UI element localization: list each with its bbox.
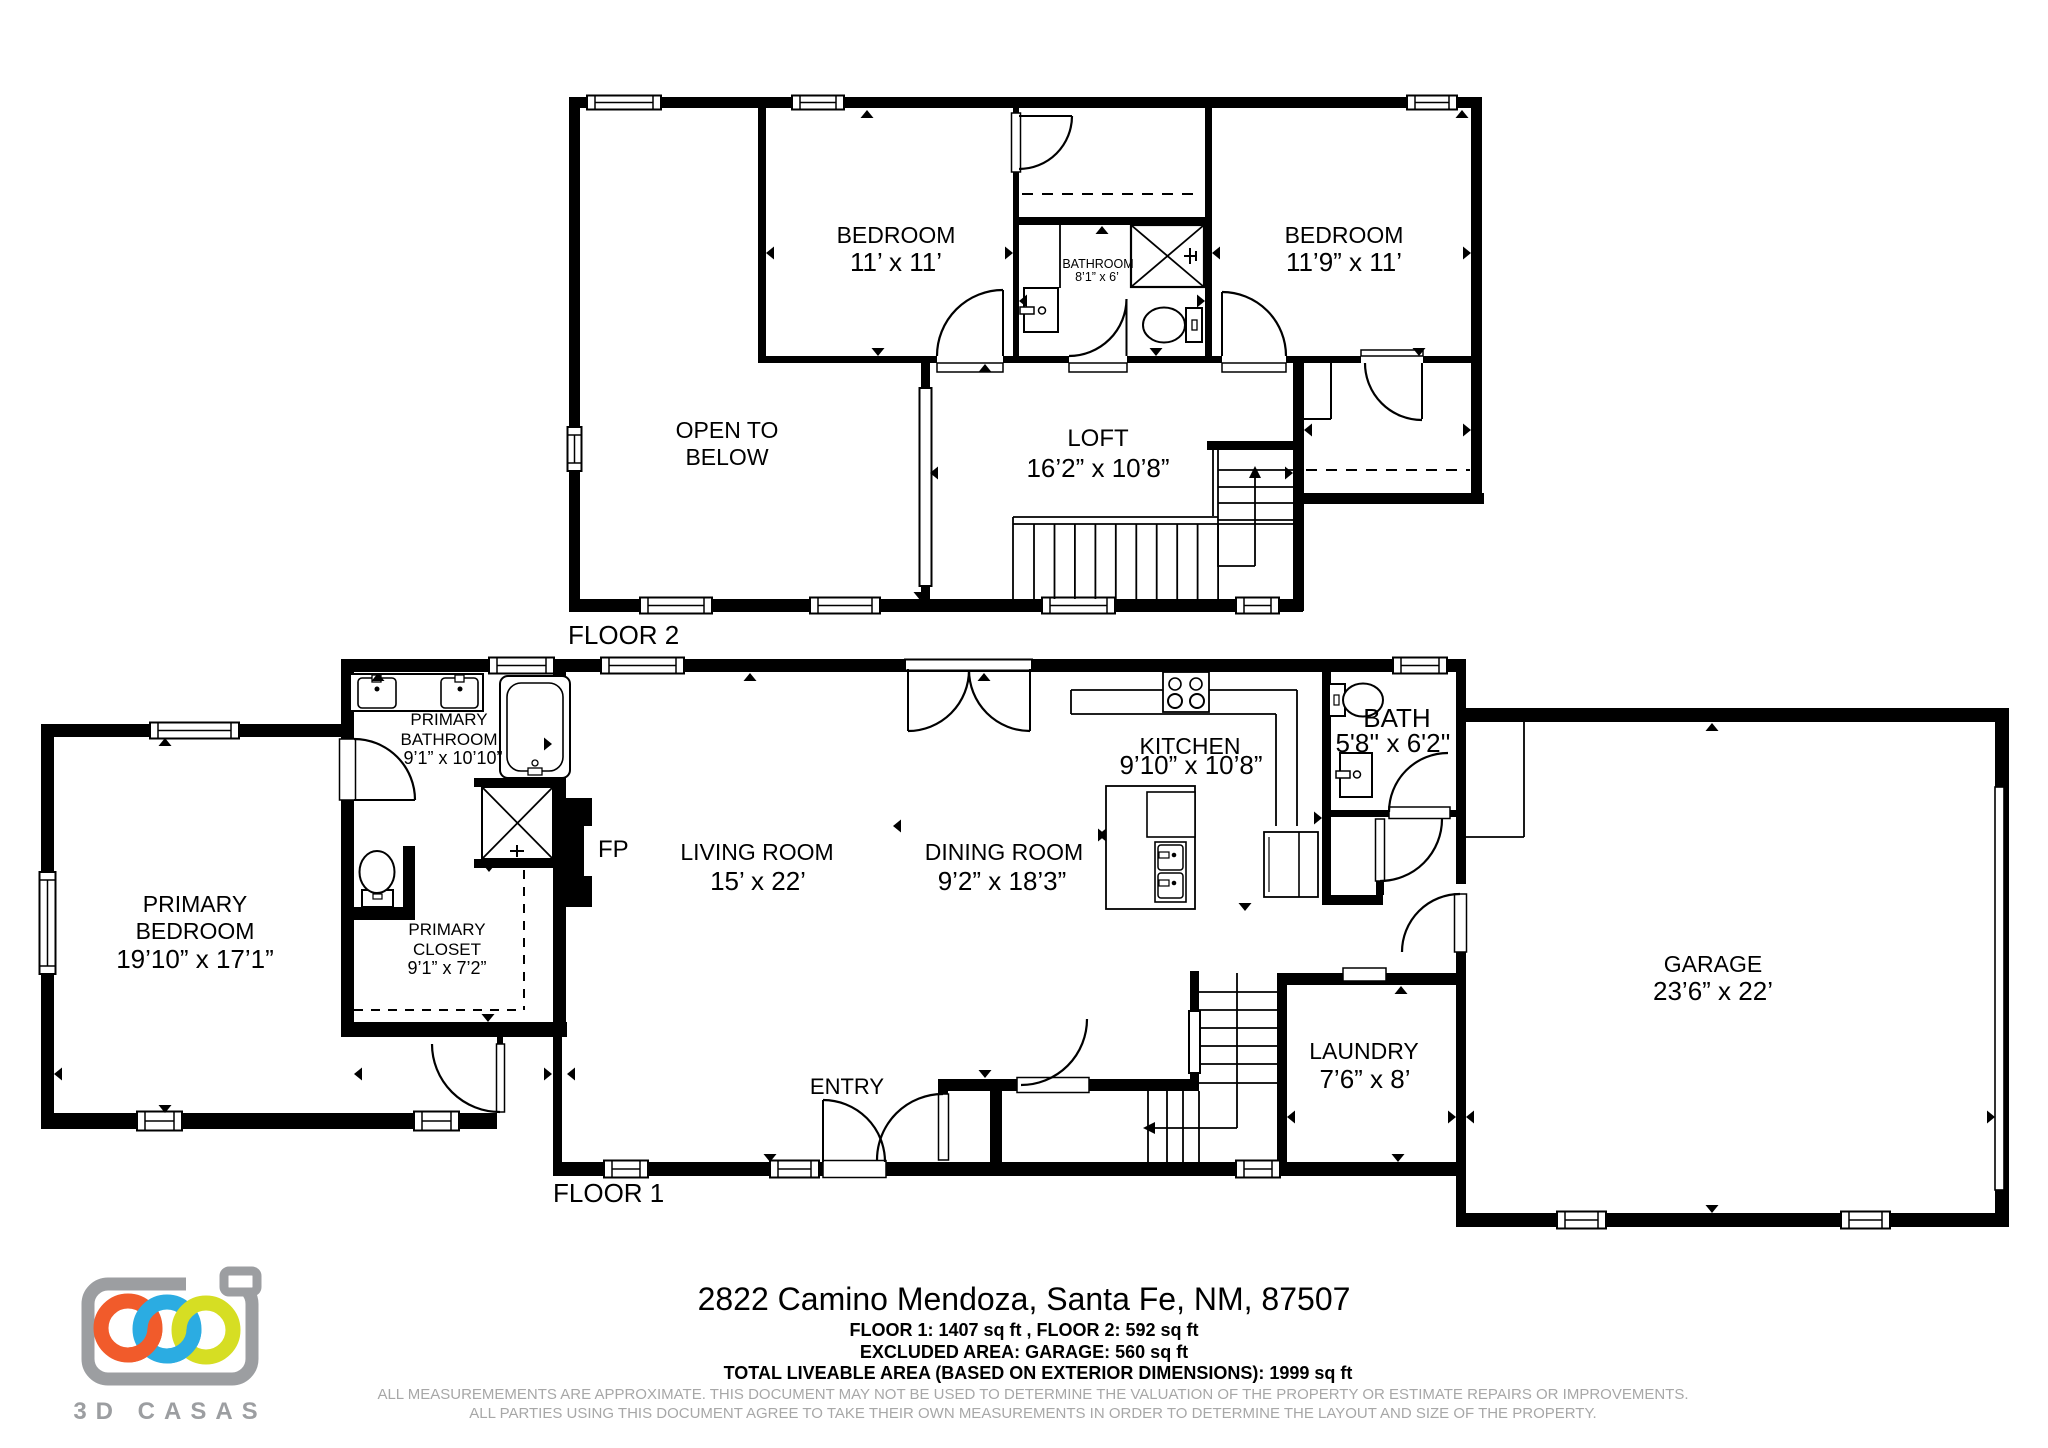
svg-text:16’2” x 10’8”: 16’2” x 10’8”: [1026, 453, 1169, 483]
svg-text:EXCLUDED AREA: GARAGE: 560 sq: EXCLUDED AREA: GARAGE: 560 sq ft: [860, 1342, 1188, 1362]
svg-text:15’ x 22’: 15’ x 22’: [710, 866, 806, 896]
svg-text:23’6” x 22’: 23’6” x 22’: [1653, 976, 1773, 1006]
svg-text:BATHROOM: BATHROOM: [401, 730, 498, 749]
svg-text:PRIMARY: PRIMARY: [143, 891, 247, 917]
svg-text:ALL PARTIES USING THIS DOCUMEN: ALL PARTIES USING THIS DOCUMENT AGREE TO…: [469, 1405, 1596, 1422]
svg-text:ENTRY: ENTRY: [810, 1074, 884, 1099]
svg-text:FLOOR 1: 1407 sq ft , FLOOR 2:: FLOOR 1: 1407 sq ft , FLOOR 2: 592 sq ft: [849, 1320, 1198, 1340]
svg-text:BELOW: BELOW: [685, 444, 768, 470]
svg-text:GARAGE: GARAGE: [1664, 951, 1762, 977]
svg-text:FLOOR 2: FLOOR 2: [568, 620, 679, 650]
svg-text:LOFT: LOFT: [1067, 425, 1129, 452]
svg-text:9’10” x 10’8”: 9’10” x 10’8”: [1119, 750, 1262, 780]
svg-text:BEDROOM: BEDROOM: [136, 918, 255, 944]
svg-text:BATHROOM: BATHROOM: [1062, 257, 1133, 271]
svg-text:BEDROOM: BEDROOM: [1285, 222, 1404, 248]
svg-text:FP: FP: [598, 836, 629, 863]
svg-text:ALL MEASUREMEMENTS ARE APPROXI: ALL MEASUREMEMENTS ARE APPROXIMATE. THIS…: [377, 1386, 1688, 1403]
svg-text:CLOSET: CLOSET: [413, 940, 481, 959]
svg-text:19’10” x 17’1”: 19’10” x 17’1”: [116, 944, 274, 974]
svg-text:9’1” x 10’10”: 9’1” x 10’10”: [403, 748, 502, 768]
svg-text:OPEN TO: OPEN TO: [676, 417, 779, 443]
svg-text:LAUNDRY: LAUNDRY: [1309, 1038, 1419, 1064]
svg-text:DINING ROOM: DINING ROOM: [925, 839, 1083, 865]
svg-text:7’6” x 8’: 7’6” x 8’: [1319, 1064, 1410, 1094]
svg-text:11’ x 11’: 11’ x 11’: [850, 247, 942, 277]
svg-text:3D CASAS: 3D CASAS: [73, 1398, 266, 1425]
svg-text:FLOOR 1: FLOOR 1: [553, 1178, 664, 1208]
svg-text:TOTAL LIVEABLE AREA (BASED ON: TOTAL LIVEABLE AREA (BASED ON EXTERIOR D…: [724, 1363, 1353, 1383]
svg-text:PRIMARY: PRIMARY: [408, 920, 485, 939]
svg-text:PRIMARY: PRIMARY: [410, 710, 487, 729]
svg-text:9’2” x 18’3”: 9’2” x 18’3”: [938, 866, 1067, 896]
svg-text:BEDROOM: BEDROOM: [837, 222, 956, 248]
svg-text:LIVING ROOM: LIVING ROOM: [680, 839, 833, 865]
svg-text:5'8'' x 6'2'': 5'8'' x 6'2'': [1335, 728, 1450, 758]
svg-text:9’1” x 7’2”: 9’1” x 7’2”: [407, 958, 486, 978]
svg-text:2822 Camino Mendoza, Santa Fe,: 2822 Camino Mendoza, Santa Fe, NM, 87507: [698, 1281, 1351, 1317]
svg-text:11’9” x 11’: 11’9” x 11’: [1286, 247, 1402, 277]
svg-text:8’1” x 6’: 8’1” x 6’: [1075, 270, 1119, 284]
